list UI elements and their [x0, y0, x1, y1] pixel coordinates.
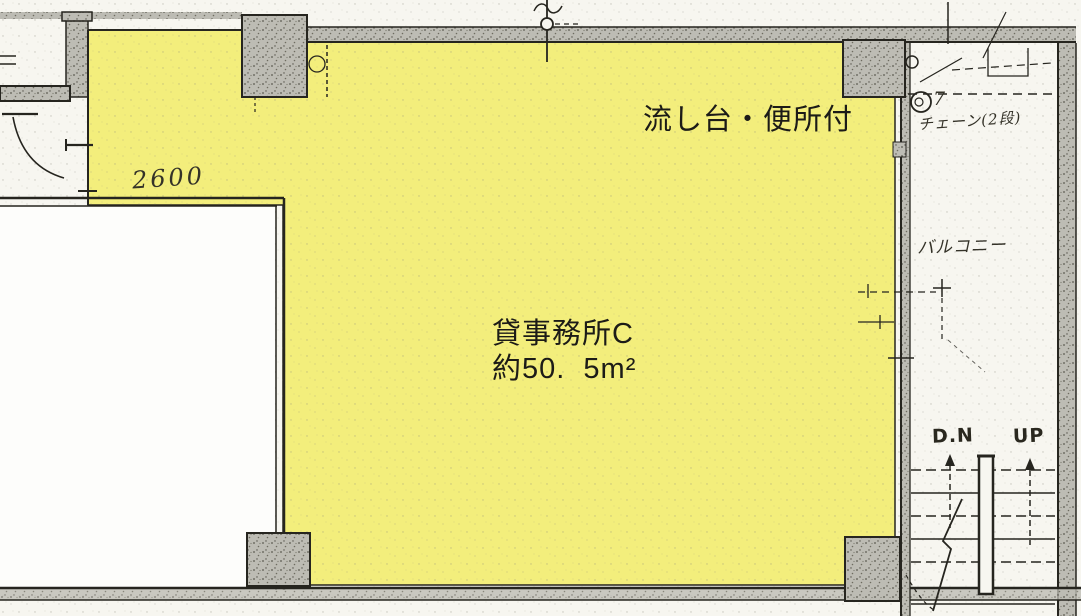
- dimension-label: 2600: [131, 162, 206, 195]
- floorplan-page: 流し台・便所付 貸事務所C 約50. 5m² 2600 チェーン(2段) バルコ…: [0, 0, 1081, 616]
- balcony-label: バルコニー: [917, 236, 1007, 259]
- circle-number-label: 7: [933, 89, 946, 111]
- stair-railing: [979, 456, 993, 594]
- column-top-left: [242, 15, 307, 97]
- stairwell-wall: [901, 43, 910, 616]
- unit-name-label: 貸事務所C: [492, 318, 634, 351]
- adjacent-room: [0, 198, 284, 590]
- floorplan-drawing: [0, 0, 1081, 616]
- column-bottom-left: [247, 533, 310, 586]
- bottom-wall: [0, 588, 1081, 600]
- right-wall: [1058, 43, 1076, 616]
- unit-area-label: 約50. 5m²: [492, 353, 636, 386]
- column-bottom-right: [845, 537, 900, 601]
- facilities-label: 流し台・便所付: [643, 104, 853, 137]
- column-top-right: [843, 40, 905, 97]
- stair-down-label: D.N: [932, 425, 975, 448]
- stair-up-label: UP: [1013, 425, 1045, 448]
